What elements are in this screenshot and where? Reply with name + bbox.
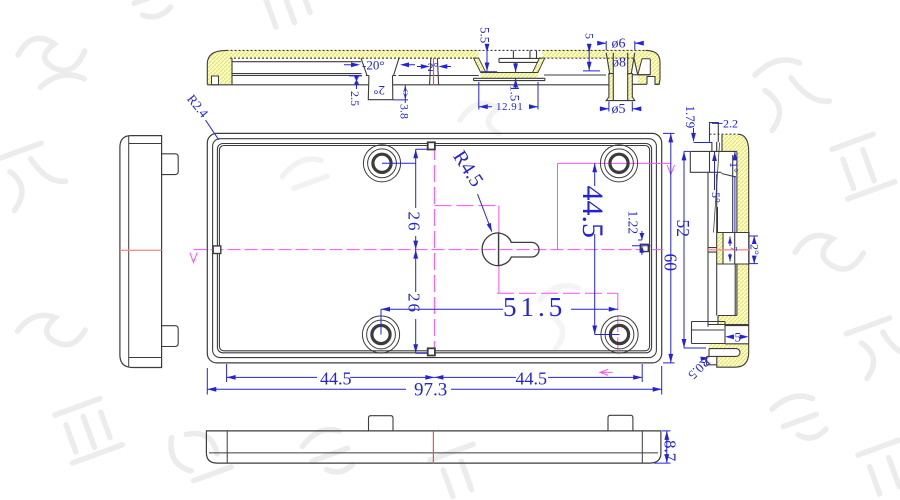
svg-text:44.5: 44.5 [576, 186, 609, 239]
svg-text:2.2: 2.2 [723, 116, 738, 130]
svg-text:26: 26 [405, 212, 424, 233]
svg-text:5: 5 [735, 330, 742, 345]
svg-text:2°: 2° [428, 60, 439, 74]
svg-text:1.5: 1.5 [508, 85, 523, 101]
svg-text:2°: 2° [748, 244, 762, 255]
svg-text:2°: 2° [373, 83, 385, 98]
svg-text:12.91: 12.91 [496, 101, 523, 113]
svg-text:26: 26 [405, 293, 424, 314]
svg-text:5.5: 5.5 [478, 27, 493, 43]
svg-text:1.79: 1.79 [683, 106, 698, 129]
svg-text:5: 5 [583, 33, 597, 39]
svg-text:44.5: 44.5 [516, 369, 548, 389]
svg-text:2.5: 2.5 [348, 91, 362, 106]
svg-text:5°: 5° [709, 192, 723, 203]
svg-text:51.5: 51.5 [503, 292, 566, 322]
svg-text:8.7: 8.7 [661, 440, 680, 462]
svg-text:97.3: 97.3 [414, 380, 447, 401]
svg-text:ø5: ø5 [612, 102, 626, 117]
svg-text:52: 52 [673, 220, 693, 238]
svg-text:44.5: 44.5 [320, 369, 352, 389]
svg-text:7: 7 [729, 247, 739, 252]
svg-text:ø8: ø8 [612, 56, 626, 71]
svg-text:1°: 1° [727, 162, 741, 173]
svg-text:-20°: -20° [362, 57, 385, 72]
svg-text:1.22: 1.22 [626, 211, 641, 235]
svg-text:ø6: ø6 [612, 37, 626, 52]
svg-text:3.8: 3.8 [398, 104, 412, 119]
svg-text:60: 60 [661, 254, 681, 272]
